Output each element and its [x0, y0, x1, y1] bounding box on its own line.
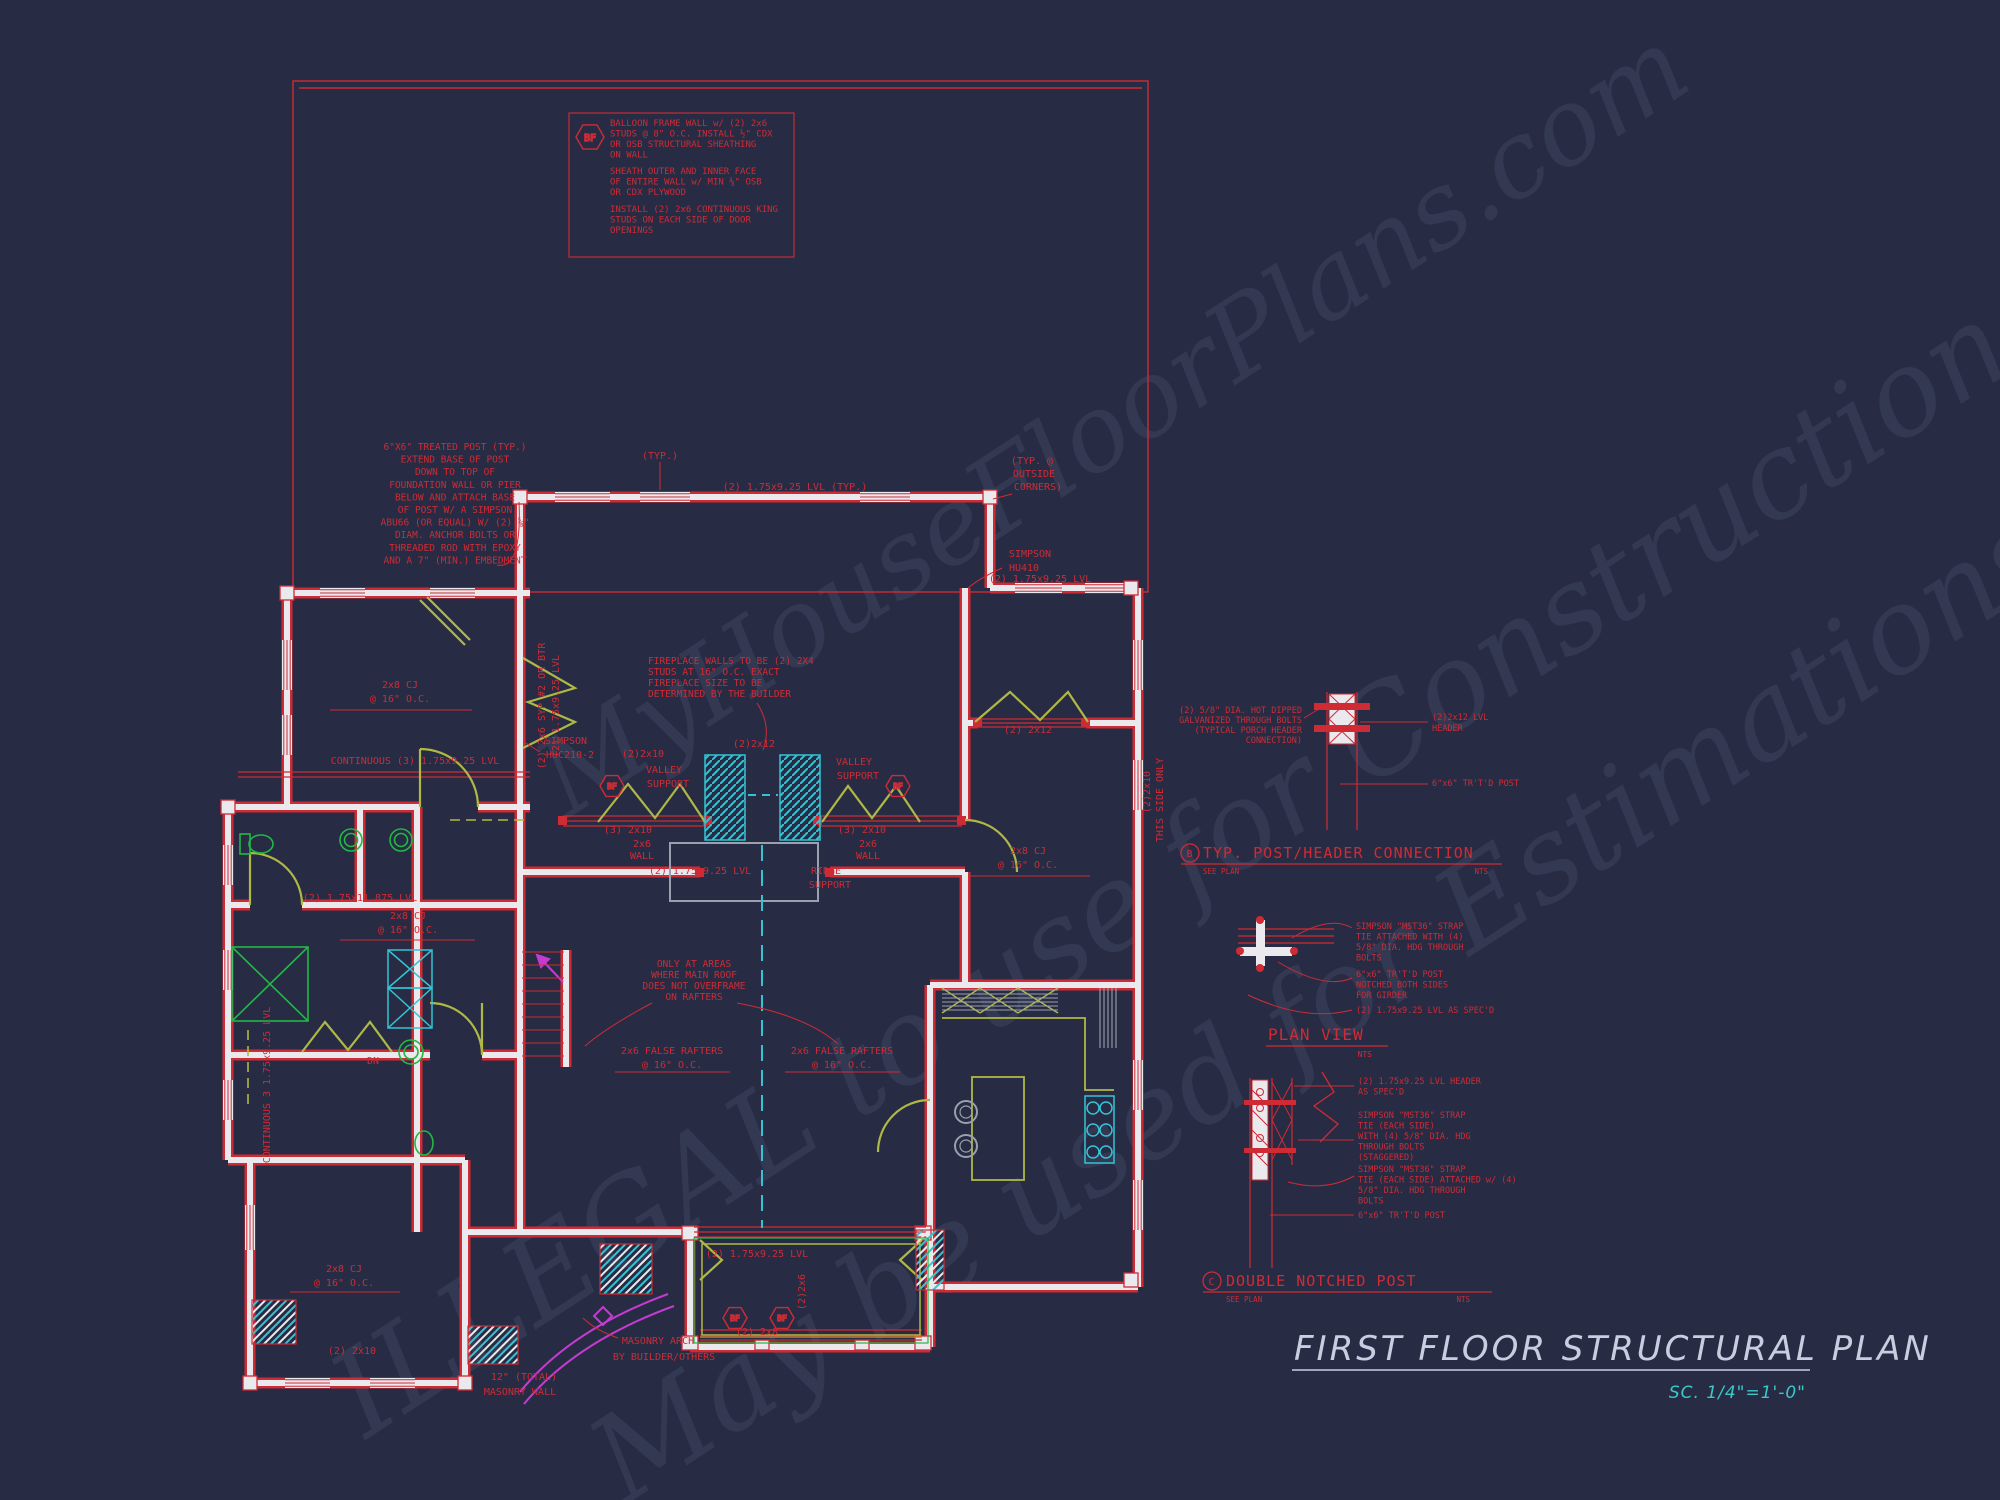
note-line: THREADED ROD WITH EPOXY: [389, 543, 521, 554]
plan-label: VALLEY: [836, 757, 872, 768]
plan-label: 2x6: [633, 839, 651, 850]
note-line: 6"X6" TREATED POST (TYP.): [384, 442, 527, 453]
detail-double-notched-post: [1244, 1072, 1338, 1268]
plan-label: DN: [367, 1056, 379, 1067]
plan-label: MASONRY WALL: [484, 1387, 556, 1398]
note-line: FIREPLACE SIZE TO BE: [648, 678, 763, 689]
sheet-scale: SC. 1/4"=1'-0": [1669, 1383, 1806, 1403]
plan-label: 2x8 CJ: [382, 680, 418, 691]
note-line: SIMPSON "MST36" STRAP: [1358, 1111, 1465, 1121]
plan-label: OUTSIDE: [1013, 469, 1055, 480]
note-line: SIMPSON "MST36" STRAP: [1356, 922, 1463, 932]
detail-titles: B TYP. POST/HEADER CONNECTION SEE PLAN N…: [1181, 844, 1502, 1304]
plan-label: (TYP.): [642, 451, 678, 462]
note-line: TIE (EACH SIDE): [1358, 1122, 1435, 1132]
plan-label: (2) 1.75x9.25 LVL: [989, 574, 1091, 585]
note-line: (2) 1.75x9.25 LVL AS SPEC'D: [1356, 1006, 1494, 1016]
plan-label: HU410: [1009, 563, 1039, 574]
plan-label: (2) 1.75x11.875 LVL: [303, 893, 417, 904]
bf-symbol: BF: [730, 1314, 740, 1323]
sheet-title: FIRST FLOOR STRUCTURAL PLAN: [1294, 1329, 1932, 1369]
note-line: DETERMINED BY THE BUILDER: [648, 689, 791, 700]
detail-c-nts: NTS: [1456, 1295, 1470, 1304]
detail-c-see-plan: SEE PLAN: [1226, 1295, 1262, 1304]
detail-b-symbol: B: [1186, 849, 1193, 860]
plan-label: (2) 1.75x9.25 LVL: [551, 655, 562, 757]
note-line: 5/8" DIA. HDG THROUGH: [1356, 943, 1463, 953]
note-line: THROUGH BOLTS: [1358, 1143, 1425, 1153]
note-line: (2) 1.75x9.25 LVL HEADER: [1358, 1077, 1482, 1087]
plan-label: (2) 2x6 SYP #2 OR BTR: [537, 642, 548, 769]
plan-label: 2x6 FALSE RAFTERS: [791, 1046, 893, 1057]
note-line: 6"x6" TR'T'D POST: [1432, 779, 1519, 789]
plan-label: (3) 2x10: [604, 825, 652, 836]
plan-label: SIMPSON: [1009, 549, 1051, 560]
note-line: (TYPICAL PORCH HEADER: [1195, 726, 1303, 736]
plan-label: 2x8 CJ: [1010, 846, 1046, 857]
detail-c-symbol: C: [1208, 1277, 1215, 1288]
note-line: STUDS @ 8" O.C. INSTALL ½" CDX: [610, 129, 773, 140]
plan-label: CONTINUOUS (3) 1.75x9.25 LVL: [331, 756, 500, 767]
plan-label: @ 16" O.C.: [378, 925, 438, 936]
note-line: DOES NOT OVERFRAME: [643, 981, 746, 992]
note-line: TIE (EACH SIDE) ATTACHED w/ (4): [1358, 1176, 1517, 1186]
plan-label: (2)2x6: [797, 1274, 808, 1310]
title-block: FIRST FLOOR STRUCTURAL PLAN SC. 1/4"=1'-…: [1292, 1329, 1932, 1403]
note-line: (STAGGERED): [1358, 1153, 1414, 1163]
plan-label: (2) 1.75x9.25 LVL: [706, 1249, 808, 1260]
note-line: HEADER: [1432, 724, 1464, 734]
note-line: OR CDX PLYWOOD: [610, 188, 686, 198]
note-line: FOUNDATION WALL OR PIER: [389, 480, 521, 491]
bf-symbol: BF: [777, 1314, 787, 1323]
plan-label: CORNERS): [1014, 482, 1062, 493]
plan-label: (2) 2x10: [328, 1346, 376, 1357]
note-line: ONLY AT AREAS: [657, 959, 732, 970]
detail-b-title: TYP. POST/HEADER CONNECTION: [1203, 844, 1474, 862]
note-line: OF ENTIRE WALL w/ MIN ⅜" OSB: [610, 178, 762, 188]
detail-plan-view: [1236, 916, 1334, 972]
chimney: [388, 950, 432, 1028]
note-line: OPENINGS: [610, 226, 653, 236]
note-line: AS SPEC'D: [1358, 1088, 1404, 1098]
plan-label: (2)2x12: [733, 739, 775, 750]
bf-markers: BF BF BF BF BF: [576, 125, 910, 1329]
plan-label: WALL: [856, 851, 880, 862]
note-line: ON WALL: [610, 151, 648, 161]
stairs: [522, 952, 564, 1056]
drawing-sheet: MyHouseFloorPlans.com ILLEGAL to use for…: [0, 0, 2000, 1500]
note-line: BALLOON FRAME WALL w/ (2) 2x6: [610, 119, 767, 129]
plan-label: @ 16" O.C.: [998, 860, 1058, 871]
plan-label: @ 16" O.C.: [314, 1278, 374, 1289]
note-line: BOLTS: [1356, 954, 1382, 964]
note-line: 5/8" DIA. HDG THROUGH: [1358, 1186, 1465, 1196]
detail-b-see-plan: SEE PLAN: [1203, 867, 1239, 876]
plan-label: THIS SIDE ONLY: [1155, 758, 1166, 842]
plan-label: (2)2x10: [622, 749, 664, 760]
note-line: AND A 7" (MIN.) EMBEDMENT: [384, 555, 527, 566]
plan-label: 12" (TOTAL): [491, 1372, 557, 1383]
plan-label: (TYP. @: [1011, 456, 1053, 467]
plan-label: BY BUILDER/OTHERS: [613, 1352, 715, 1363]
note-line: FIREPLACE WALLS TO BE (2) 2X4: [648, 656, 814, 667]
plan-label: SUPPORT: [647, 779, 689, 790]
note-line: ON RAFTERS: [665, 992, 722, 1003]
plan-label: VALLEY: [646, 765, 682, 776]
bf-symbol: BF: [893, 782, 903, 791]
plan-label: (2) 2x12: [1004, 725, 1052, 736]
detail-b-nts: NTS: [1474, 867, 1488, 876]
plan-label: MASONRY ARCH: [622, 1336, 694, 1347]
plan-label: 2x8 CJ: [390, 911, 426, 922]
plan-label: (2) 1.75x9.25 LVL: [649, 866, 751, 877]
note-line: NOTCHED BOTH SIDES: [1356, 981, 1448, 991]
note-line: TIE ATTACHED WITH (4): [1356, 933, 1463, 943]
note-line: BELOW AND ATTACH BASE: [395, 492, 515, 503]
note-line: INSTALL (2) 2x6 CONTINUOUS KING: [610, 205, 778, 215]
plan-label: 2x6: [859, 839, 877, 850]
plan-label: 2x8 CJ: [326, 1264, 362, 1275]
note-line: 6"x6" TR'T'D POST: [1358, 1211, 1445, 1221]
note-line: SIMPSON "MST36" STRAP: [1358, 1165, 1465, 1175]
detail-post-header-connection: [1314, 692, 1370, 830]
note-line: WITH (4) 5/8" DIA. HDG: [1358, 1132, 1471, 1142]
plan-label: @ 16" O.C.: [370, 694, 430, 705]
note-line: STUDS AT 16" O.C. EXACT: [648, 667, 780, 678]
bf-symbol: BF: [584, 133, 596, 144]
plan-label: (2) 1.75x9.25 LVL (TYP.): [723, 482, 868, 493]
note-line: ABU66 (OR EQUAL) W/ (2) ⅝": [381, 518, 530, 529]
bf-symbol: BF: [607, 782, 617, 791]
plan-view-title: PLAN VIEW: [1268, 1025, 1364, 1044]
note-line: FOR GIRDER: [1356, 991, 1408, 1001]
plan-label: (2) 2x8: [736, 1327, 778, 1338]
note-line: STUDS ON EACH SIDE OF DOOR: [610, 216, 751, 226]
fireplace-wall: [705, 755, 745, 840]
detail-c-title: DOUBLE NOTCHED POST: [1226, 1272, 1417, 1290]
note-line: SHEATH OUTER AND INNER FACE: [610, 167, 756, 177]
plan-label: WALL: [630, 851, 654, 862]
plan-label: 2x6 FALSE RAFTERS: [621, 1046, 723, 1057]
gray-elements: [670, 843, 1116, 1157]
plan-label: (3) 2x10: [838, 825, 886, 836]
note-line: (2) 5/8" DIA. HOT DIPPED: [1179, 706, 1302, 716]
note-line: CONNECTION): [1246, 736, 1302, 746]
note-line: EXTEND BASE OF POST: [401, 455, 510, 466]
note-line: WHERE MAIN ROOF: [651, 970, 737, 981]
plan-label: SUPPORT: [837, 771, 879, 782]
note-line: 6"x6" TR'T'D POST: [1356, 970, 1443, 980]
plan-label: @ 16" O.C.: [812, 1060, 872, 1071]
plan-label: CONTINUOUS 3 1.75x9.25 LVL: [262, 1007, 273, 1164]
plan-label: (2)2x10: [1142, 771, 1153, 813]
note-line: OR OSB STRUCTURAL SHEATHING: [610, 140, 756, 150]
plan-view-nts: NTS: [1358, 1050, 1373, 1059]
note-line: GALVANIZED THROUGH BOLTS: [1179, 716, 1302, 726]
plan-label: SUPPORT: [809, 880, 851, 891]
plan-label: RIDGE: [811, 866, 841, 877]
note-line: (2)2x12 LVL: [1432, 713, 1488, 723]
note-line: OF POST W/ A SIMPSON: [398, 505, 513, 516]
cooktop: [1085, 1096, 1114, 1163]
plan-label: @ 16" O.C.: [642, 1060, 702, 1071]
note-line: DOWN TO TOP OF: [415, 467, 495, 478]
note-line: BOLTS: [1358, 1197, 1384, 1207]
fireplace-wall: [780, 755, 820, 840]
note-line: DIAM. ANCHOR BOLTS OR: [395, 530, 515, 541]
